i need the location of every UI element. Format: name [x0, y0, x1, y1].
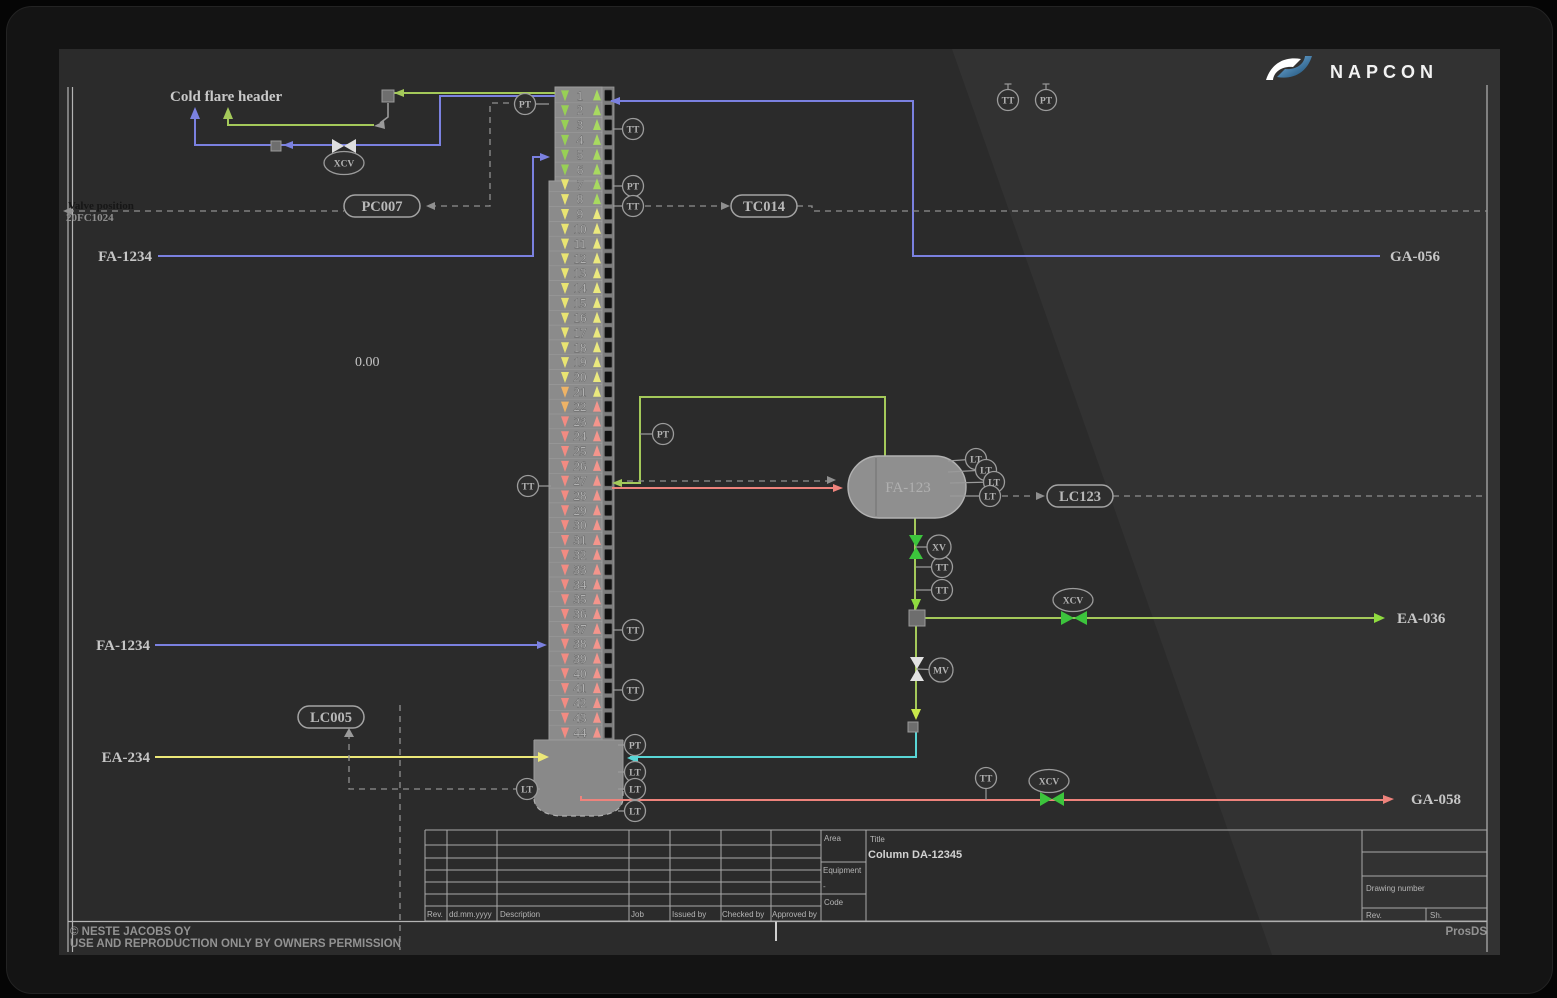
- tray-downcomer-slot: [605, 357, 613, 368]
- stream-fa1234-mid: FA-1234: [96, 638, 150, 654]
- instrument-tt-bubble[interactable]: TT: [916, 557, 953, 578]
- tray-number: 33: [574, 562, 587, 577]
- instrument-tt-bubble[interactable]: TT: [613, 620, 644, 641]
- tray-number: 44: [574, 725, 588, 740]
- tray-downcomer-slot: [605, 268, 613, 279]
- copyright-line1: © NESTE JACOBS OY: [70, 926, 191, 938]
- junction-ea036: [909, 610, 925, 626]
- line-flare-drop: [380, 103, 388, 123]
- tray-number: 6: [577, 162, 584, 177]
- controller-label: LC123: [1059, 489, 1101, 505]
- tray-downcomer-slot: [605, 475, 613, 486]
- controller-label: PC007: [361, 199, 402, 215]
- screen-glare: [952, 49, 1500, 955]
- tray-number: 35: [574, 592, 587, 607]
- instrument-pt-bubble[interactable]: PT: [640, 424, 674, 445]
- xcv-ga058-valve[interactable]: [1040, 792, 1052, 806]
- tray-downcomer-slot: [605, 238, 613, 249]
- tray-number: 16: [574, 310, 588, 325]
- controller-tc014[interactable]: TC014: [731, 195, 797, 217]
- tray-downcomer-slot: [605, 505, 613, 516]
- instrument-label: LT: [629, 769, 641, 779]
- instrument-label: TT: [1002, 97, 1015, 107]
- mv-valve[interactable]: [910, 657, 924, 669]
- arrow-into-lc005: [344, 728, 354, 737]
- tray-downcomer-slot: [605, 564, 613, 575]
- job-header: Job: [631, 910, 644, 919]
- instrument-label: PT: [657, 431, 670, 441]
- checked-by-header: Checked by: [722, 910, 764, 919]
- tray-number: 9: [577, 207, 584, 222]
- tray-downcomer-slot: [605, 149, 613, 160]
- column-sump: [534, 740, 623, 816]
- tray-downcomer-slot: [605, 416, 613, 427]
- arrow-down-mv: [911, 709, 921, 720]
- tray-number: 42: [574, 696, 587, 711]
- tray-number: 40: [574, 666, 587, 681]
- tray-downcomer-slot: [605, 134, 613, 145]
- instrument-label: LT: [629, 786, 641, 796]
- instrument-tt-bubble[interactable]: TT: [518, 476, 552, 497]
- instrument-tt-bubble[interactable]: TT: [613, 119, 644, 140]
- area-label: Area: [824, 834, 841, 843]
- tray-number: 32: [574, 547, 587, 562]
- arrow-left-overhead: [394, 89, 404, 97]
- reflux-drum[interactable]: FA-123: [848, 456, 966, 518]
- tray-number: 24: [574, 429, 588, 444]
- tray-downcomer-slot: [605, 312, 613, 323]
- arrow-up-flare-blue: [190, 107, 200, 119]
- tray-number: 29: [574, 503, 587, 518]
- valve-tag-xcv[interactable]: XCV: [1053, 589, 1093, 612]
- tray-number: 1: [577, 88, 584, 103]
- stream-ga056: GA-056: [1390, 249, 1440, 265]
- tray-number: 10: [574, 221, 587, 236]
- system-name: ProsDS: [1445, 926, 1487, 938]
- tray-downcomer-slot: [605, 609, 613, 620]
- tray-number: 15: [574, 295, 587, 310]
- valve-tag-label: MV: [933, 667, 949, 677]
- valve-tag-xcv[interactable]: XCV: [1029, 770, 1069, 793]
- stream-ga058: GA-058: [1411, 792, 1461, 808]
- signal-pt-pc007: [430, 103, 513, 206]
- tray-number: 20: [574, 370, 587, 385]
- tray-downcomer-slot: [605, 594, 613, 605]
- tray-number: 22: [574, 399, 587, 414]
- approved-by-header: Approved by: [772, 910, 817, 919]
- junction-flare: [271, 141, 281, 151]
- tray-number: 14: [574, 281, 588, 296]
- tray-number: 17: [574, 325, 588, 340]
- instrument-tt-bubble[interactable]: TT: [613, 680, 644, 701]
- valve-position-tag: 20FC1024: [66, 212, 114, 224]
- tray-downcomer-slot: [605, 712, 613, 723]
- instrument-label: TT: [627, 203, 640, 213]
- tray-downcomer-slot: [605, 683, 613, 694]
- tray-downcomer-slot: [605, 727, 613, 738]
- brand-name: NAPCON: [1330, 62, 1438, 82]
- tray-number: 34: [574, 577, 588, 592]
- tray-downcomer-slot: [605, 120, 613, 131]
- tray-number: 12: [574, 251, 587, 266]
- valve-tag-label: XCV: [334, 160, 355, 170]
- stream-ea234: EA-234: [102, 750, 151, 766]
- junction-top: [382, 90, 394, 102]
- issued-by-header: Issued by: [672, 910, 706, 919]
- distillation-column: 1234567891011121314151617181920212223242…: [534, 87, 623, 816]
- instrument-label: LT: [521, 786, 533, 796]
- tray-number: 13: [574, 266, 587, 281]
- xcv-ea036-valve[interactable]: [1061, 611, 1074, 625]
- arrow-into-lc123: [1036, 492, 1045, 500]
- arrow-red-into-drum: [833, 484, 843, 492]
- tray-downcomer-slot: [605, 579, 613, 590]
- instrument-tt-bubble[interactable]: TT: [613, 196, 644, 217]
- instrument-label: LT: [984, 493, 996, 503]
- tray-downcomer-slot: [605, 549, 613, 560]
- tray-number: 26: [574, 458, 588, 473]
- tray-number: 18: [574, 340, 587, 355]
- drawing-number-label: Drawing number: [1366, 884, 1425, 893]
- rev-header: Rev.: [427, 910, 443, 919]
- description-header: Description: [500, 910, 540, 919]
- tray-downcomer-slot: [605, 431, 613, 442]
- tray-number: 4: [577, 132, 584, 147]
- instrument-label: TT: [522, 483, 535, 493]
- equipment-value: -: [823, 882, 826, 891]
- arrow-up-flare-green: [223, 107, 233, 119]
- tray-number: 3: [577, 118, 584, 133]
- xv-valve[interactable]: [909, 547, 923, 559]
- tray-downcomer-slot: [605, 342, 613, 353]
- tray-downcomer-slot: [605, 668, 613, 679]
- valve-tag-label: XCV: [1063, 597, 1084, 607]
- line-reboiler-return: [630, 731, 916, 757]
- instrument-tt-bubble[interactable]: TT: [976, 768, 997, 801]
- tray-number: 41: [574, 681, 587, 696]
- copyright-line2: USE AND REPRODUCTION ONLY BY OWNERS PERM…: [70, 938, 401, 950]
- instrument-label: PT: [519, 101, 532, 111]
- tray-number: 31: [574, 533, 587, 548]
- signal-lt-lc005: [349, 733, 516, 789]
- tray-number: 30: [574, 518, 587, 533]
- tray-number: 2: [577, 103, 584, 118]
- equipment-label: Equipment: [823, 866, 862, 875]
- valves: [332, 139, 1087, 806]
- tray-downcomer-slot: [605, 209, 613, 220]
- instrument-tt-bubble[interactable]: TT: [916, 580, 953, 601]
- sheet-label: Sh.: [1430, 911, 1442, 920]
- tray-number: 36: [574, 607, 588, 622]
- code-label: Code: [824, 898, 844, 907]
- tray-downcomer-slot: [605, 446, 613, 457]
- controller-pc007[interactable]: PC007: [344, 195, 420, 217]
- tray-number: 23: [574, 414, 587, 429]
- stream-ea036: EA-036: [1397, 611, 1446, 627]
- tray-downcomer-slot: [605, 372, 613, 383]
- instrument-label: TT: [936, 587, 949, 597]
- tray-downcomer-slot: [605, 327, 613, 338]
- arrow-down-junction: [911, 599, 921, 610]
- tray-downcomer-slot: [605, 698, 613, 709]
- tray-downcomer-slot: [605, 460, 613, 471]
- mv-valve[interactable]: [910, 669, 924, 681]
- tray-number: 39: [574, 651, 587, 666]
- xcv-ea036-valve[interactable]: [1074, 611, 1087, 625]
- tray-number: 8: [577, 192, 584, 207]
- controller-lc005[interactable]: LC005: [298, 706, 364, 728]
- instrument-label: PT: [629, 742, 642, 752]
- arrow-dashed-into-drum: [827, 476, 836, 484]
- tray-downcomer-slot: [605, 401, 613, 412]
- instrument-label: TT: [627, 126, 640, 136]
- tray-downcomer-slot: [605, 653, 613, 664]
- tray-number: 28: [574, 488, 587, 503]
- arrow-into-pc007: [426, 202, 435, 210]
- tray-number: 21: [574, 384, 587, 399]
- valve-tag-xcv[interactable]: XCV: [324, 152, 364, 175]
- cold-flare-header-label: Cold flare header: [170, 89, 283, 105]
- tray-downcomer-slot: [605, 90, 613, 101]
- tray-downcomer-slot: [605, 223, 613, 234]
- stream-fa1234-top: FA-1234: [98, 249, 152, 265]
- line-flare-green: [228, 116, 374, 125]
- drawing-title: Column DA-12345: [868, 849, 962, 861]
- valve-tag-label: XV: [932, 544, 946, 554]
- instrument-label: TT: [980, 775, 993, 785]
- title-label: Title: [870, 835, 885, 844]
- tray-number: 27: [574, 473, 588, 488]
- tray-downcomer-slot: [605, 283, 613, 294]
- valve-tag-label: XCV: [1039, 778, 1060, 788]
- tray-number: 37: [574, 621, 588, 636]
- tray-downcomer-slot: [605, 520, 613, 531]
- instrument-label: TT: [936, 564, 949, 574]
- tray-downcomer-slot: [605, 386, 613, 397]
- tray-number: 19: [574, 355, 587, 370]
- xv-valve[interactable]: [909, 535, 923, 547]
- tray-downcomer-slot: [605, 194, 613, 205]
- instrument-label: TT: [627, 627, 640, 637]
- tray-downcomer-slot: [605, 535, 613, 546]
- junction-reboiler: [908, 722, 918, 732]
- value-readout: 0.00: [355, 355, 380, 370]
- arrow-into-tray5: [540, 153, 550, 161]
- arrow-flare-drop: [374, 121, 385, 129]
- tray-downcomer-slot: [605, 623, 613, 634]
- tray-downcomer-slot: [605, 179, 613, 190]
- instrument-pt-bubble[interactable]: PT: [613, 176, 644, 197]
- controller-lc123[interactable]: LC123: [1047, 485, 1113, 507]
- drum-label: FA-123: [885, 480, 931, 496]
- valve-position-label: Valve position: [68, 200, 134, 212]
- tray-number: 7: [577, 177, 584, 192]
- tray-downcomer-slot: [605, 638, 613, 649]
- tray-number: 43: [574, 710, 587, 725]
- controller-label: LC005: [310, 710, 352, 726]
- date-header: dd.mm.yyyy: [449, 910, 492, 919]
- rev-label: Rev.: [1366, 911, 1382, 920]
- pid-diagram: 1234567891011121314151617181920212223242…: [0, 0, 1557, 998]
- instrument-label: PT: [627, 183, 640, 193]
- tray-number: 5: [577, 147, 584, 162]
- tray-downcomer-slot: [605, 297, 613, 308]
- arrow-into-tray38: [537, 641, 547, 649]
- tray-number: 11: [574, 236, 587, 251]
- tray-downcomer-slot: [605, 490, 613, 501]
- tray-number: 25: [574, 444, 587, 459]
- instrument-label: PT: [1040, 97, 1053, 107]
- tray-number: 38: [574, 636, 587, 651]
- arrow-into-tc014: [721, 202, 730, 210]
- arrow-left-xcv: [283, 141, 293, 149]
- xcv-ga058-valve[interactable]: [1052, 792, 1064, 806]
- controller-label: TC014: [743, 199, 785, 215]
- instrument-label: TT: [627, 687, 640, 697]
- instrument-label: LT: [629, 808, 641, 818]
- tray-downcomer-slot: [605, 105, 613, 116]
- valve-tag-xv[interactable]: XV: [916, 535, 951, 559]
- tray-downcomer-slot: [605, 164, 613, 175]
- tray-downcomer-slot: [605, 253, 613, 264]
